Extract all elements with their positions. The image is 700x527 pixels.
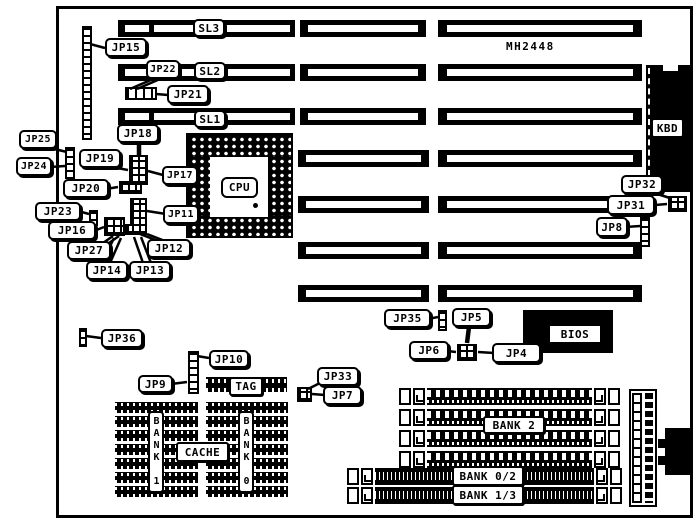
slot-label-sl2: SL2 xyxy=(194,62,226,80)
jumper-label-jp5: JP5 xyxy=(452,308,491,327)
tag-label: TAG xyxy=(229,377,263,396)
bios-label: BIOS xyxy=(548,324,602,344)
bank1-label: BANK 1 xyxy=(148,411,164,493)
jumper-label-jp20: JP20 xyxy=(63,179,109,198)
jumper-label-jp35: JP35 xyxy=(384,309,431,328)
jumper-label-jp21: JP21 xyxy=(167,85,209,104)
jumper-label-jp16: JP16 xyxy=(48,221,96,240)
jumper-label-jp19: JP19 xyxy=(79,149,121,168)
jumper-label-jp33: JP33 xyxy=(317,367,359,386)
jumper-label-jp18: JP18 xyxy=(117,124,159,143)
bank02-label: BANK 0/2 xyxy=(452,466,524,486)
jumper-label-jp17: JP17 xyxy=(162,166,198,185)
kbd-label: KBD xyxy=(651,118,684,138)
jumper-label-jp14: JP14 xyxy=(86,261,128,280)
jumper-label-jp11: JP11 xyxy=(163,205,199,224)
jumper-label-jp32: JP32 xyxy=(621,175,663,194)
jumper-label-jp4: JP4 xyxy=(492,343,541,363)
jumper-label-jp22: JP22 xyxy=(146,60,180,79)
motherboard-diagram: MH2448 CPU KBD BIOS xyxy=(0,0,700,527)
jumper-label-jp12: JP12 xyxy=(147,239,191,258)
slot-label-sl1: SL1 xyxy=(194,110,226,128)
cpu-label: CPU xyxy=(221,177,258,198)
bank13-label: BANK 1/3 xyxy=(452,485,524,505)
bank2-label: BANK 2 xyxy=(483,416,545,434)
jumper-label-jp15: JP15 xyxy=(105,38,147,57)
jumper-label-jp23: JP23 xyxy=(35,202,81,221)
jumper-label-jp27: JP27 xyxy=(67,241,111,260)
jumper-label-jp36: JP36 xyxy=(101,329,143,348)
jumper-label-jp25: JP25 xyxy=(19,130,57,149)
bank0-label: BANK 0 xyxy=(238,411,254,493)
jumper-label-jp7: JP7 xyxy=(323,386,362,405)
jumper-label-jp8: JP8 xyxy=(596,217,628,237)
jumper-label-jp6: JP6 xyxy=(409,341,449,360)
cache-label: CACHE xyxy=(176,442,229,462)
jumper-label-jp24: JP24 xyxy=(16,157,52,176)
slot-label-sl3: SL3 xyxy=(193,19,225,37)
jumper-label-jp13: JP13 xyxy=(129,261,171,280)
jumper-label-jp10: JP10 xyxy=(209,350,249,368)
jumper-label-jp9: JP9 xyxy=(138,375,173,393)
jumper-label-jp31: JP31 xyxy=(607,195,655,215)
